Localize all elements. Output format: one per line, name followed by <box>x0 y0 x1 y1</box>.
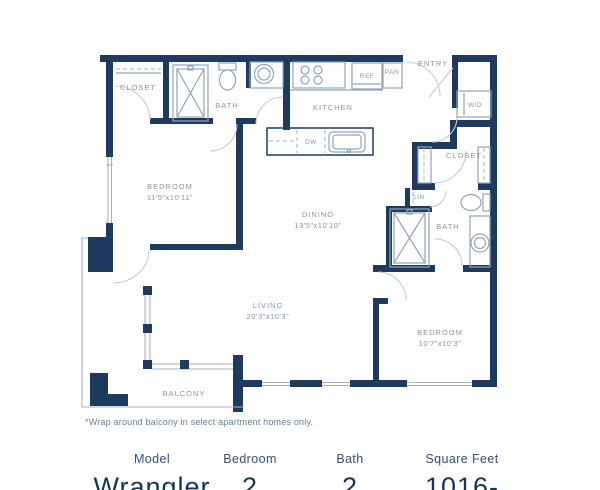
label-entry: ENTRY <box>418 59 448 68</box>
wall-wd-bottom <box>457 120 497 127</box>
wall-closet2-bottom-a <box>412 183 435 190</box>
shower-2 <box>390 209 429 267</box>
footnote: *Wrap around balcony in select apartment… <box>85 417 313 427</box>
vanity-sink-2 <box>470 216 490 267</box>
wall-hall-east <box>412 142 418 190</box>
label-bath-2: BATH <box>436 222 459 231</box>
door-bedroom2 <box>378 272 406 300</box>
summary-header-sqft: Square Feet <box>395 452 529 466</box>
bath1-fixtures <box>173 62 283 121</box>
label-bath-1: BATH <box>215 101 238 110</box>
door-bedroom1 <box>210 124 237 151</box>
wall-bottom-b <box>290 380 322 387</box>
toilet-1 <box>219 63 236 90</box>
wall-bedroom1-south <box>150 244 243 250</box>
rail-post-1 <box>143 286 152 295</box>
dims-dining: 13'5"x10'10" <box>294 221 341 230</box>
wall-closet2-top <box>412 142 456 149</box>
floor-plan: CLOSET BATH KITCHEN REF PAN DW ENTRY W/D… <box>0 0 600 490</box>
balcony-pillar-right <box>233 355 243 412</box>
door-entry-leaf <box>429 68 453 97</box>
wall-bottom-a <box>243 380 262 387</box>
dims-bedroom-1: 11'5"x10'11" <box>147 193 193 202</box>
wall-bedroom2-divider <box>373 298 379 387</box>
walls <box>88 55 497 412</box>
wall-top <box>100 55 403 62</box>
dims-living: 20'3"x10'3" <box>247 312 289 321</box>
wall-left-upper <box>106 55 113 157</box>
wall-bath2-south <box>373 265 435 272</box>
label-lin: LIN <box>413 194 425 201</box>
door-bath1 <box>256 97 283 124</box>
island-sink <box>329 132 365 153</box>
label-dining: DINING <box>302 210 334 219</box>
label-kitchen: KITCHEN <box>313 103 353 112</box>
window-living-a <box>262 383 290 386</box>
wall-bedroom2-stub <box>373 298 388 304</box>
label-living: LIVING <box>253 301 284 310</box>
stove <box>293 62 345 88</box>
door-balcony <box>113 250 149 283</box>
label-dw: DW <box>305 139 317 146</box>
summary-col-bedroom: Bedroom 2 <box>198 452 302 490</box>
wall-closet1-bath1 <box>163 62 169 120</box>
door-lin <box>430 191 446 207</box>
summary-value-bedroom: 2 <box>198 472 302 490</box>
wall-left-mid <box>106 223 113 239</box>
label-closet-2: CLOSET <box>446 151 482 160</box>
window-bedroom2-south <box>407 383 472 386</box>
summary-value-bath: 2 <box>298 472 402 490</box>
closet1-rod <box>116 69 161 73</box>
summary-header-bedroom: Bedroom <box>198 452 302 466</box>
rail-post-4 <box>180 360 189 369</box>
label-wd: W/D <box>468 102 482 109</box>
label-pan: PAN <box>385 69 399 76</box>
summary-col-sqft: Square Feet 1016-1018 <box>395 452 529 490</box>
wall-bottom-d <box>472 380 497 387</box>
summary-col-model: Model Wrangler <box>90 452 214 490</box>
dims-bedroom-2: 10'7"x10'3" <box>419 339 461 348</box>
label-balcony: BALCONY <box>163 389 206 398</box>
floor-plan-page: CLOSET BATH KITCHEN REF PAN DW ENTRY W/D… <box>0 0 600 490</box>
kitchen-island <box>267 128 373 155</box>
summary-table: Model Wrangler Bedroom 2 Bath 2 Square F… <box>0 452 600 490</box>
wall-kitchen-west <box>283 62 290 130</box>
toilet-2 <box>461 194 490 211</box>
wall-bath2-west <box>386 206 392 268</box>
balcony-pillar-left-foot <box>90 394 128 406</box>
door-bath2 <box>435 239 462 266</box>
rail-post-2 <box>143 324 152 333</box>
summary-header-bath: Bath <box>298 452 402 466</box>
shower-1 <box>173 65 208 121</box>
window-bedroom1-west <box>106 157 113 223</box>
label-bedroom-1: BEDROOM <box>147 182 193 191</box>
summary-value-sqft: 1016-1018 <box>395 472 529 490</box>
summary-header-model: Model <box>90 452 214 466</box>
window-living-b <box>322 383 350 386</box>
vanity-sink-1 <box>250 62 283 88</box>
summary-value-model: Wrangler <box>90 472 214 490</box>
wall-bath2-south-b <box>463 265 497 272</box>
wall-closet2-bottom-b <box>478 183 497 190</box>
wall-bedroom1-east <box>236 118 243 250</box>
label-closet-1: CLOSET <box>120 83 156 92</box>
label-ref: REF <box>360 73 375 80</box>
pillar-west <box>88 237 113 272</box>
rail-post-3 <box>143 360 152 369</box>
summary-col-bath: Bath 2 <box>298 452 402 490</box>
label-bedroom-2: BEDROOM <box>417 328 463 337</box>
